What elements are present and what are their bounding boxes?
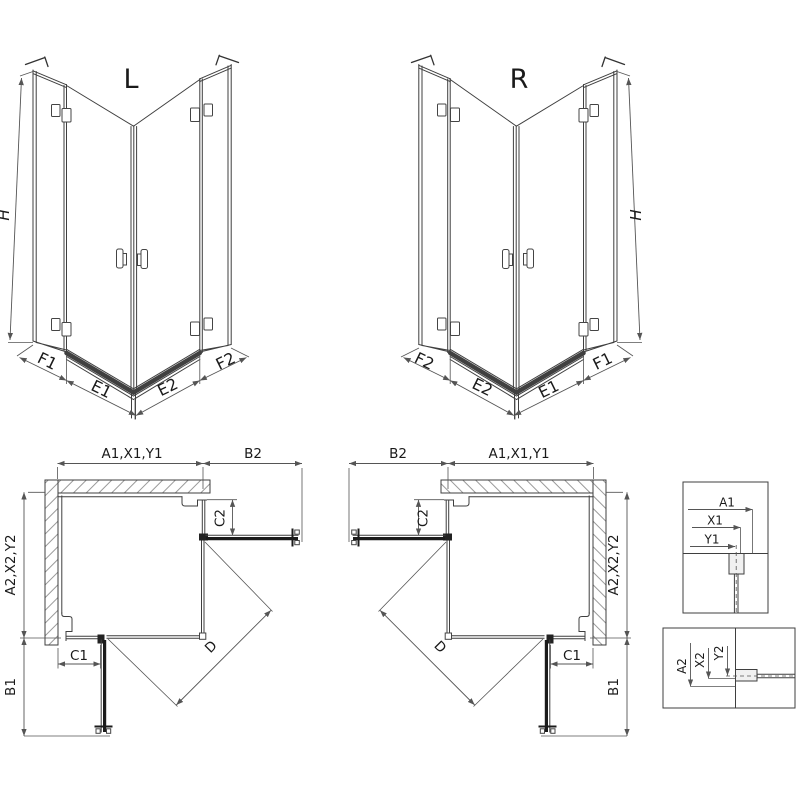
detail-wall-dim-a1: A1 (719, 496, 735, 510)
plan-left-dim-width: A1,X1,Y1 (101, 446, 162, 462)
detail-floor-dim-y2: Y2 (712, 646, 726, 662)
iso-right-dim-f2: F2 (412, 348, 438, 374)
plan-left-dim-c1: C1 (70, 648, 88, 664)
technical-drawing-page: L H F1 E1 E2 F2 R H F2 E2 E1 F1 A1,X1,Y1… (0, 0, 800, 800)
plan-left-dim-depth: A2,X2,Y2 (3, 534, 19, 595)
detail-floor-dim-x2: X2 (693, 652, 707, 668)
iso-left-dim-h: H (0, 209, 13, 220)
iso-right-dim-h: H (627, 209, 645, 220)
detail-floor-dim-a2: A2 (675, 658, 689, 674)
plan-right-dim-d: D (430, 638, 449, 657)
iso-right-dim-f1: F1 (590, 348, 616, 374)
plan-right-dim-width: A1,X1,Y1 (488, 446, 549, 462)
detail-wall-dim-y1: Y1 (704, 533, 720, 547)
plan-right-dim-depth: A2,X2,Y2 (606, 534, 622, 595)
plan-right-dim-b2: B2 (389, 446, 407, 462)
plan-right-dim-b1: B1 (606, 678, 622, 696)
shower-enclosure-diagram: L H F1 E1 E2 F2 R H F2 E2 E1 F1 A1,X1,Y1… (0, 0, 800, 800)
iso-left-dim-f1: F1 (35, 348, 61, 374)
plan-right-view: B2 A1,X1,Y1 A2,X2,Y2 B1 C1 C2 D (349, 446, 631, 736)
detail-wall-dim-x1: X1 (707, 514, 723, 528)
iso-left-title: L (123, 64, 138, 95)
plan-left-dim-d: D (202, 638, 221, 657)
iso-left-dim-f2: F2 (213, 348, 239, 374)
plan-left-dim-b2: B2 (244, 446, 262, 462)
plan-right-dim-c1: C1 (563, 648, 581, 664)
plan-left-view: A1,X1,Y1 B2 A2,X2,Y2 B1 C1 C2 D (3, 446, 302, 736)
iso-right-title: R (510, 64, 529, 95)
plan-left-dim-c2: C2 (213, 509, 229, 527)
plan-left-dim-b1: B1 (3, 678, 19, 696)
detail-floor-section: A2 X2 Y2 (663, 628, 795, 708)
iso-right-view: R H F2 E2 E1 F1 (401, 55, 645, 419)
plan-right-dim-c2: C2 (416, 509, 432, 527)
iso-left-view: L H F1 E1 E2 F2 (0, 55, 249, 419)
detail-wall-section: A1 X1 Y1 (683, 482, 768, 613)
